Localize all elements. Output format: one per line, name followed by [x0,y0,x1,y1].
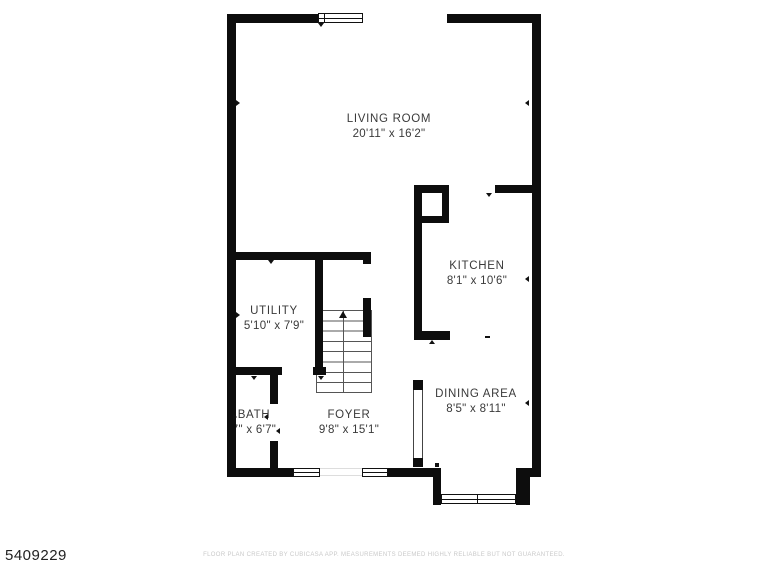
wall [433,468,441,505]
door-marker [318,23,324,27]
dimension-tick [435,463,439,467]
wall [414,331,450,340]
door-marker [486,193,492,197]
room-dims: 5'10" x 7'9" [194,320,354,332]
room-name: LIVING ROOM [309,113,469,125]
wall [495,185,541,193]
room-dims: 9'8" x 15'1" [269,424,429,436]
room-dims: 20'11" x 16'2" [309,128,469,140]
disclaimer-text: FLOOR PLAN CREATED BY CUBICASA APP. MEAS… [0,552,768,558]
wall [363,298,371,337]
wall [227,367,282,375]
railing-post [413,458,423,467]
window [362,468,388,477]
closet-wall [414,216,449,223]
bay-window [441,494,516,504]
dimension-tick [525,276,529,282]
wall [227,252,371,260]
room-label-utility: UTILITY 5'10" x 7'9" [194,305,354,332]
wall [447,14,541,23]
doorway-threshold [320,475,362,476]
dimension-tick [233,414,237,420]
wall [270,375,278,404]
window [293,468,320,477]
stairs-up-arrow-icon [339,311,347,318]
wall [227,468,293,477]
dimension-tick [525,400,529,406]
wall [270,441,278,468]
wall [363,252,371,264]
railing-post [413,380,423,390]
door-marker [268,260,274,264]
door-marker [429,340,435,344]
dimension-tick [276,428,280,434]
wall [530,468,541,477]
dimension-tick [236,100,240,106]
wall [313,367,326,375]
floor-plan: LIVING ROOM 20'11" x 16'2" KITCHEN 8'1" … [0,0,768,576]
doorway-threshold [320,468,362,469]
window-divider [324,14,325,22]
wall [516,468,530,505]
door-marker [318,376,324,380]
dimension-tick [525,100,529,106]
wall [315,252,323,375]
wall [532,14,541,477]
room-name: UTILITY [194,305,354,317]
wall [414,185,422,339]
dimension-tick [485,336,490,338]
wall [227,14,318,23]
room-label-living-room: LIVING ROOM 20'11" x 16'2" [309,113,469,140]
door-marker [251,376,257,380]
window-divider [477,495,478,503]
wall [227,14,236,477]
dimension-tick [236,312,240,318]
dimension-tick [264,414,268,420]
